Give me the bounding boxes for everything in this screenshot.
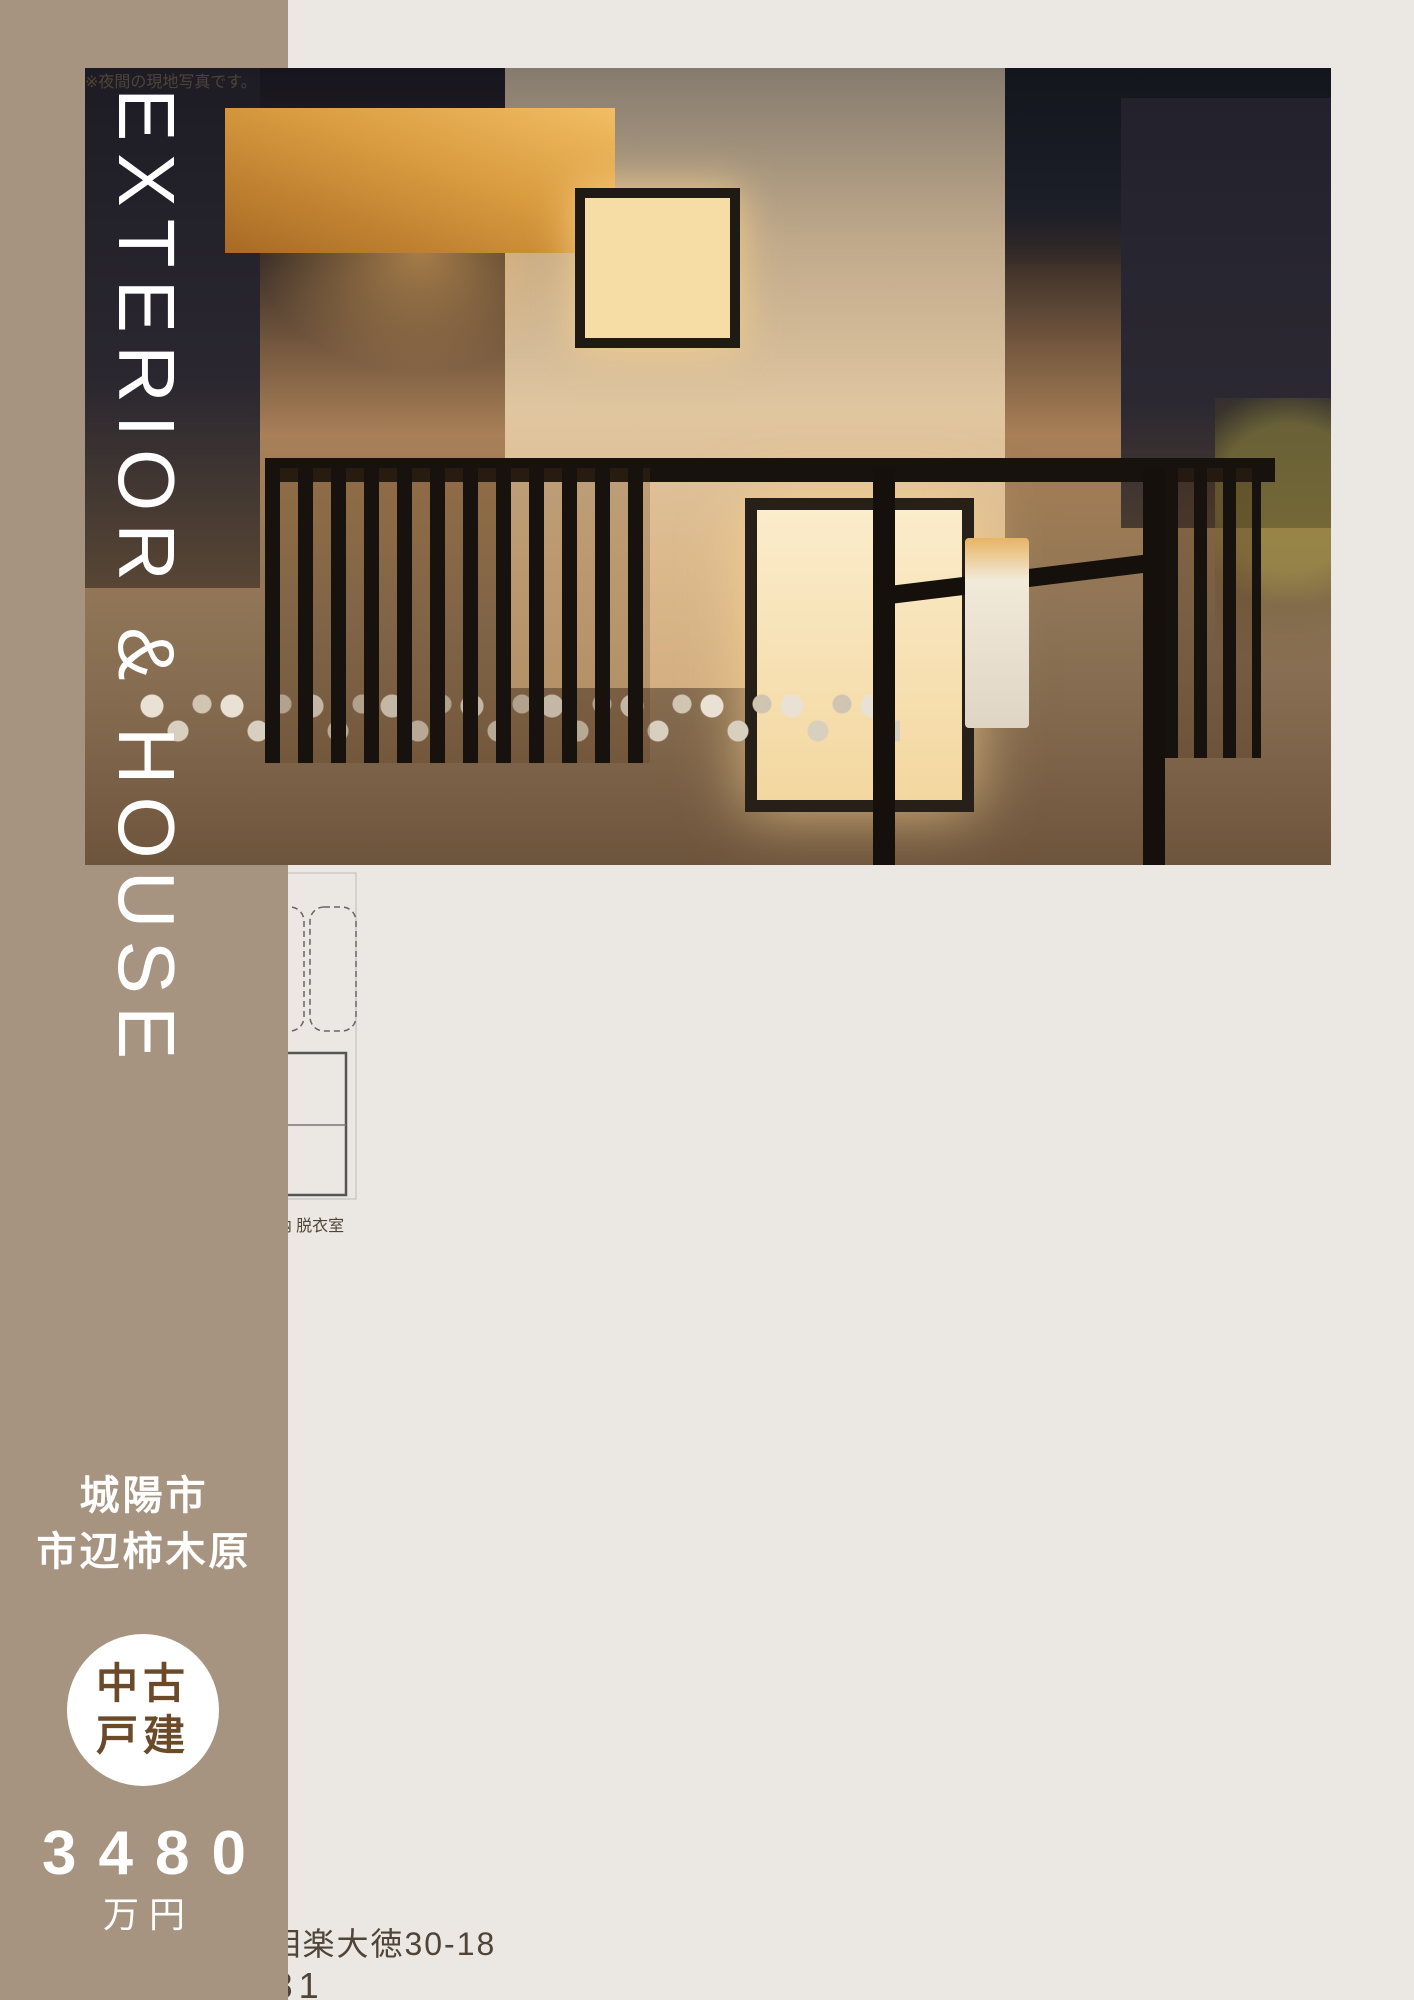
price-unit: 万円 [0,1886,288,1938]
location-city: 城陽市 [80,1474,209,1518]
fp1-datsui-label: 脱衣室 [296,1218,344,1235]
photo-gate-post [873,468,895,865]
flyer-page: EXTERIOR & HOUSE 城陽市 市辺柿木原 中古 戸建 3480 万円… [0,0,1414,2000]
exterior-photo: ※夜間の現地写真です。 [85,68,1331,865]
location-district: 市辺柿木原 [37,1530,252,1574]
location-label: 城陽市 市辺柿木原 [0,1468,288,1580]
photo-slat-fence-right [1165,468,1261,758]
photo-lit-window-large [745,498,974,812]
property-type-badge: 中古 戸建 [67,1634,219,1786]
photo-lit-window-small [575,188,740,348]
photo-gate-post-2 [1143,468,1165,865]
photo-canopy-glow [255,253,585,373]
price-value: 3480 [0,1818,288,1889]
photo-mailbox-pillar [965,538,1029,728]
photo-slat-fence [265,468,650,763]
vertical-title: EXTERIOR & HOUSE [100,88,192,1168]
badge-line2: 戸建 [96,1710,190,1763]
badge-line1: 中古 [96,1658,190,1711]
photo-wood-canopy [225,108,615,253]
